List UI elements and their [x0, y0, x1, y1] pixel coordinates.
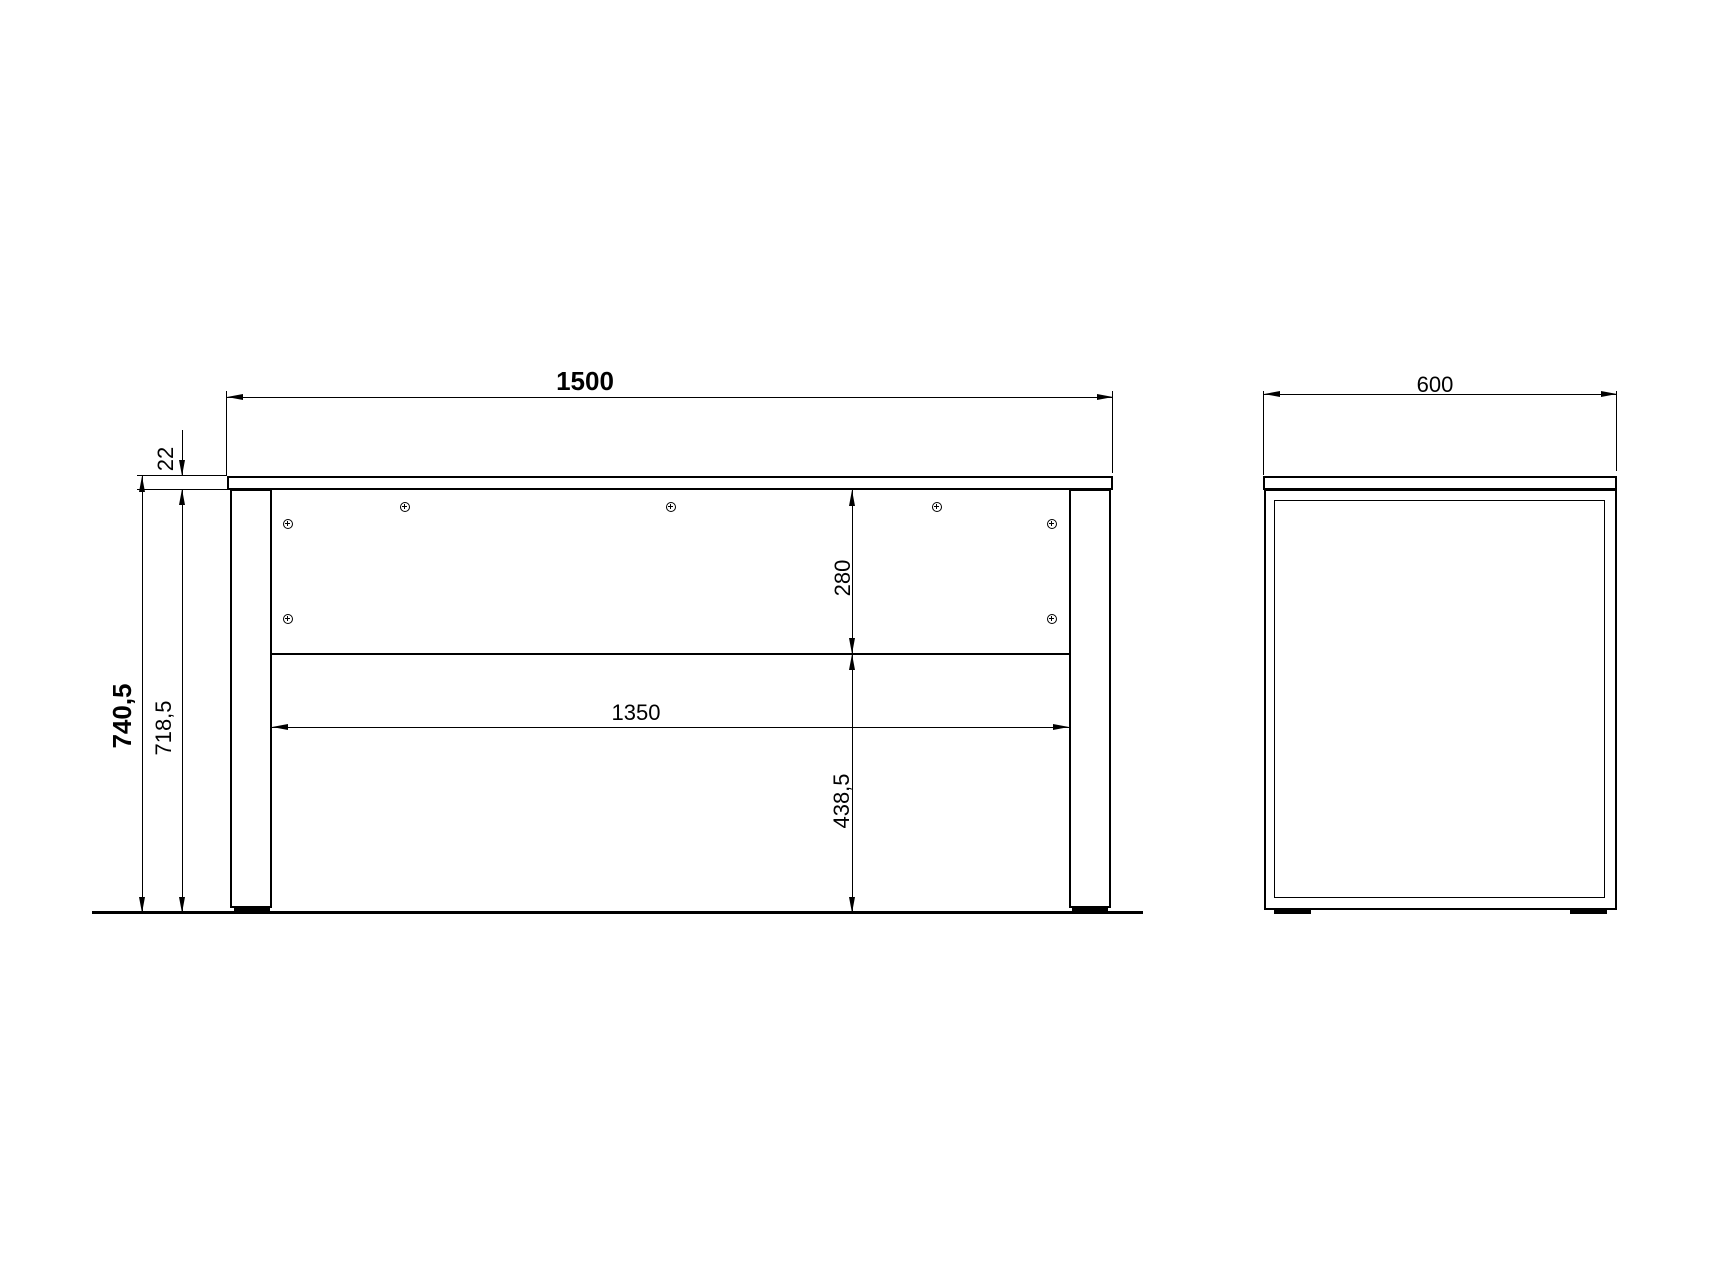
screw-icon: [932, 502, 942, 512]
arrowhead-icon: [1601, 391, 1617, 397]
arrowhead-icon: [139, 897, 145, 913]
screw-icon: [666, 502, 676, 512]
side-front-foot-glide: [1274, 908, 1311, 914]
dim-ext-line: [1263, 391, 1264, 475]
dim-label-underframe-height: 718,5: [153, 683, 175, 773]
dim-line-width: [227, 397, 1113, 398]
dim-label-depth: 600: [1395, 374, 1475, 396]
arrowhead-icon: [139, 476, 145, 492]
dim-line-underframe-height: [182, 489, 183, 913]
tabletop-front: [227, 476, 1113, 490]
arrowhead-icon: [1053, 724, 1069, 730]
right-leg: [1069, 489, 1111, 908]
arrowhead-icon: [849, 897, 855, 913]
dim-line-total-height: [142, 476, 143, 913]
screw-icon: [283, 519, 293, 529]
dim-line-inner-width: [272, 727, 1069, 728]
dim-label-inner-width: 1350: [591, 702, 681, 724]
arrowhead-icon: [272, 724, 288, 730]
technical-drawing-canvas: 1500 22 740,5 718,5 280 438,5 1350: [0, 0, 1710, 1283]
arrowhead-icon: [179, 489, 185, 505]
arrowhead-icon: [849, 490, 855, 506]
dim-label-back-panel-height: 280: [832, 548, 854, 608]
arrowhead-icon: [1264, 391, 1280, 397]
dim-ext-line: [1616, 391, 1617, 471]
arrowhead-icon: [179, 897, 185, 913]
dim-label-clearance-height: 438,5: [831, 756, 853, 846]
side-panel-inset: [1274, 500, 1605, 898]
dim-ext-line: [226, 391, 227, 475]
screw-icon: [1047, 614, 1057, 624]
arrowhead-icon: [227, 394, 243, 400]
arrowhead-icon: [1097, 394, 1113, 400]
arrowhead-icon: [179, 460, 185, 476]
dim-label-top-thickness: 22: [155, 439, 177, 479]
right-foot-glide: [1072, 907, 1108, 913]
back-panel-bottom-edge: [271, 653, 1070, 655]
arrowhead-icon: [849, 654, 855, 670]
tabletop-side: [1263, 476, 1617, 490]
screw-icon: [400, 502, 410, 512]
side-rear-foot-glide: [1570, 908, 1607, 914]
dim-ext-line: [1112, 391, 1113, 473]
arrowhead-icon: [849, 638, 855, 654]
dim-label-width: 1500: [535, 368, 635, 394]
dim-label-total-height: 740,5: [109, 671, 135, 761]
left-foot-glide: [234, 907, 270, 913]
screw-icon: [283, 614, 293, 624]
screw-icon: [1047, 519, 1057, 529]
left-leg: [230, 489, 272, 908]
